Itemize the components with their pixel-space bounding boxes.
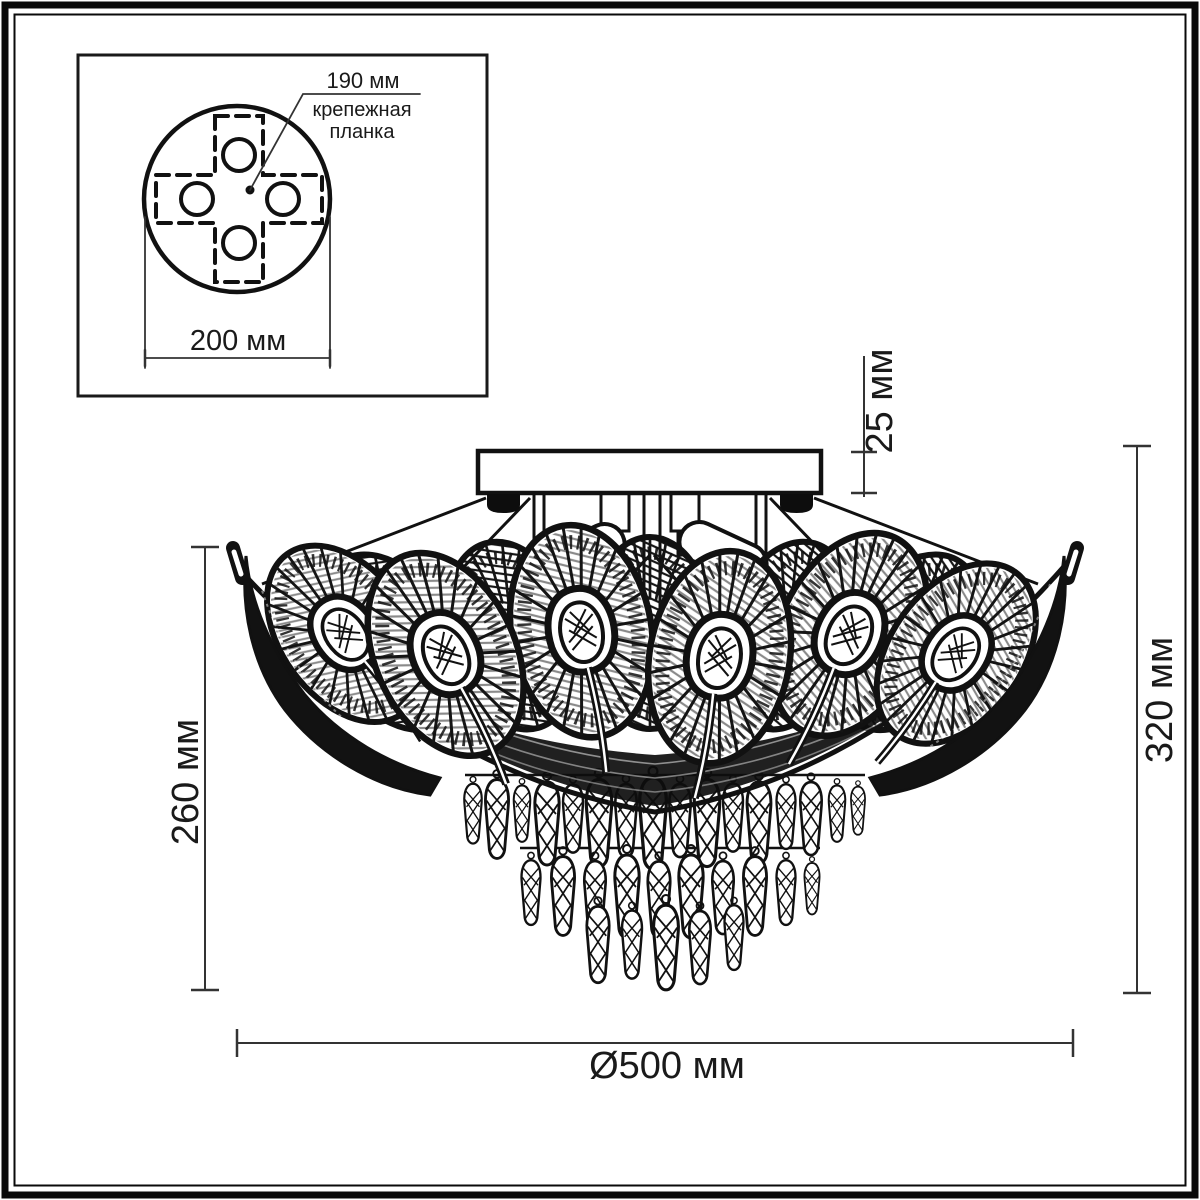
crystal-drop	[777, 852, 796, 925]
crystal-drop	[800, 773, 821, 855]
crystal-drop	[654, 895, 679, 990]
ceiling-plate	[478, 451, 821, 493]
mounting-hole-bottom	[223, 227, 255, 259]
crystal-drop	[464, 777, 481, 844]
crystal-drop	[851, 781, 865, 835]
crystal-drop	[689, 902, 710, 984]
mounting-plate-inset: 190 мм крепежная планка 200 мм	[78, 55, 487, 396]
crystal-drop	[587, 897, 609, 983]
shade-height-label: 260 мм	[165, 719, 207, 845]
crystal-drop	[777, 776, 796, 849]
crystal-drop	[622, 902, 642, 978]
crystal-drop	[725, 897, 744, 970]
canopy-height-label: 25 мм	[859, 348, 901, 453]
canopy-end-cap-left	[487, 494, 520, 513]
hole-pitch-label: 190 мм	[326, 68, 399, 93]
mounting-hole-right	[267, 183, 299, 215]
crystal-drop	[804, 857, 819, 915]
technical-drawing-page: 190 мм крепежная планка 200 мм	[0, 0, 1200, 1200]
crystal-drop	[829, 779, 846, 842]
crystal-drop	[743, 847, 766, 935]
crystal-drop	[551, 847, 574, 935]
bracket-label-line2: планка	[330, 121, 396, 143]
crystal-drop	[514, 779, 531, 842]
chandelier-dimension-diagram: 190 мм крепежная планка 200 мм	[0, 0, 1200, 1200]
mounting-hole-top	[223, 139, 255, 171]
canopy-end-cap-right	[780, 494, 813, 513]
mounting-hole-left	[181, 183, 213, 215]
diameter-label: Ø500 мм	[589, 1045, 745, 1087]
mounting-plate-circle	[144, 106, 330, 292]
crystal-drop	[522, 852, 541, 925]
bracket-label-line1: крепежная	[312, 99, 411, 121]
plate-diameter-label: 200 мм	[190, 325, 286, 357]
total-height-label: 320 мм	[1139, 637, 1181, 763]
